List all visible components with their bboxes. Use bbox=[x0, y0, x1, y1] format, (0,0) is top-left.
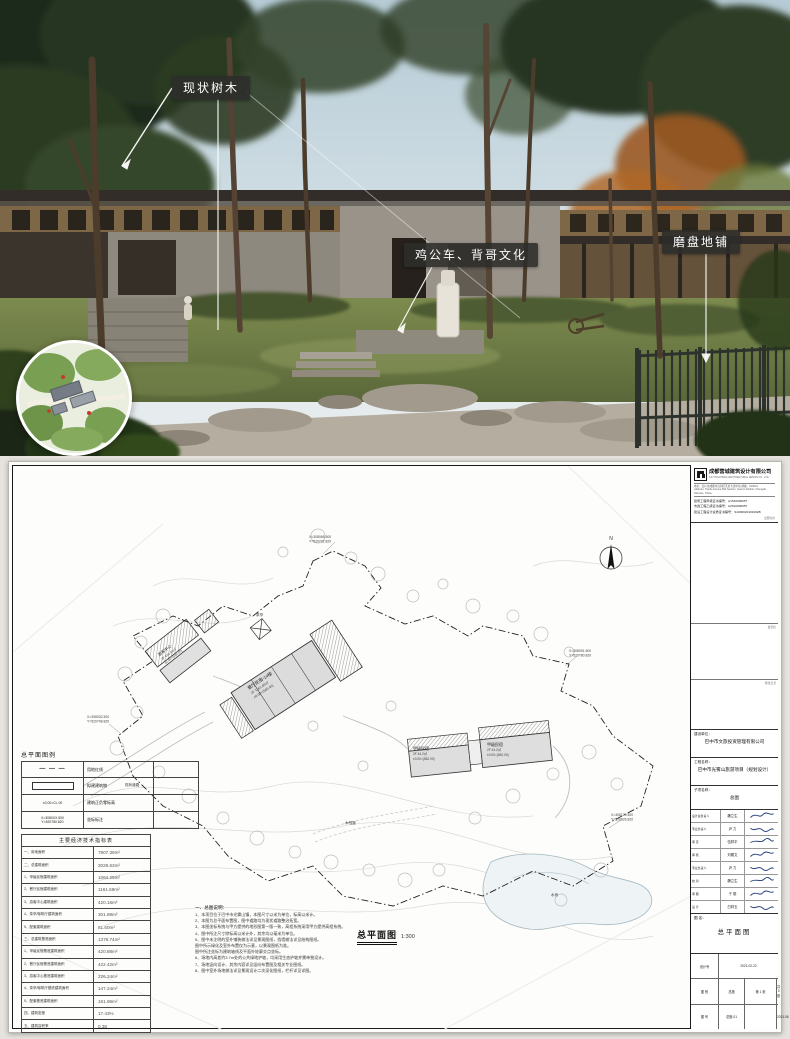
drawing-no-value: 总施-01 bbox=[719, 1005, 745, 1029]
owner-label: 建设单位： bbox=[694, 732, 775, 737]
legend-symbol: X=3080XX.500Y=520780.820 bbox=[22, 812, 84, 828]
sign-bar-section: 会签栏 bbox=[691, 623, 778, 679]
signature-name: 魏立生 bbox=[721, 810, 745, 822]
svg-text:Y=520780.820: Y=520780.820 bbox=[569, 654, 591, 658]
drawing-name-value: 总平面图 bbox=[694, 926, 775, 936]
signature-name: 于 丽 bbox=[721, 888, 745, 900]
signature-row: 专业负责人尹 力 bbox=[691, 862, 778, 875]
signature-scribble bbox=[745, 901, 778, 913]
indicator-value: 420.88m² bbox=[94, 946, 152, 957]
indicator-label: 1、甲级民宿基底建筑面积 bbox=[22, 946, 94, 957]
signature-row: 审 定伍祥平 bbox=[691, 836, 778, 849]
signature-row: 审 图于 丽 bbox=[691, 888, 778, 901]
signature-row: 校 对魏立生 bbox=[691, 875, 778, 888]
indicator-value: 226.24m² bbox=[94, 971, 152, 982]
signature-role: 校 对 bbox=[691, 875, 721, 887]
project-block: 工程名称： 巴中市光雾山旅游项目（规划设计） bbox=[691, 757, 778, 785]
signature-scribble bbox=[745, 862, 778, 874]
indicator-row: 5、配套基底建筑面积161.96m² bbox=[21, 996, 151, 1008]
svg-text:甲级民宿: 甲级民宿 bbox=[413, 745, 429, 751]
general-notes: 一、总图说明： 1、本项目位于巴中市光雾山镇，本图尺寸以米为单位，标高以米计。2… bbox=[195, 904, 357, 974]
indicator-value: 161.96m² bbox=[94, 996, 152, 1007]
svg-text:X=308065.500: X=308065.500 bbox=[309, 535, 331, 539]
note-line: 3、本图坐标系统与甲方提供的地形图第一版一致，高程系统采用甲方提供高程系统。 bbox=[195, 924, 357, 930]
legend-row: 拟建建筑物 bbox=[21, 778, 199, 795]
indicator-row: 5、配套建筑面积81.60m² bbox=[21, 921, 151, 933]
legend-label: 用地红线 bbox=[84, 762, 154, 777]
drawing-number-grid: 设计号 2021-02-22 图 别 总施 第 1 张 共 3 张 图 号 总施… bbox=[691, 953, 778, 1029]
indicator-value: 17.43% bbox=[94, 1008, 152, 1019]
indicator-label: 2、餐厅民宿基底建筑面积 bbox=[22, 959, 94, 970]
legend-table: — — —用地红线拟建建筑物±0.00=CL.00建筑正负零标高X=3080XX… bbox=[21, 761, 199, 829]
svg-text:2F 44.2㎡: 2F 44.2㎡ bbox=[413, 751, 428, 756]
company-logo-icon bbox=[694, 468, 707, 481]
subitem-block: 子项名称： 总图 bbox=[691, 785, 778, 809]
indicator-row: 1、甲级民宿基底建筑面积420.88m² bbox=[21, 946, 151, 958]
signature-row: 设 计白祥玉 bbox=[691, 901, 778, 913]
owner-value: 巴中市文旅投资管理有限公司 bbox=[694, 739, 775, 745]
building-cluster-restaurant bbox=[214, 620, 362, 743]
callout-culture-label: 鸡公车、背哥文化 bbox=[415, 248, 527, 262]
signature-role: 专业负责人 bbox=[691, 823, 721, 835]
signature-name: 伍祥平 bbox=[721, 836, 745, 848]
building-cluster-visitor-center bbox=[145, 605, 230, 683]
svg-text:X=308091.500: X=308091.500 bbox=[569, 649, 591, 653]
indicator-value: 1161.69m² bbox=[94, 884, 152, 895]
indicator-value: 420.16m² bbox=[94, 897, 152, 908]
callout-existing-trees: 现状树木 bbox=[172, 76, 250, 100]
boardwalk bbox=[313, 806, 437, 842]
legend-symbol: — — — bbox=[22, 762, 84, 777]
company-block: 成都营城建筑设计有限公司 CD YINGCHENG ARCHITECTURAL … bbox=[691, 465, 778, 523]
signature-scribble bbox=[745, 888, 778, 900]
indicator-label: 一、用地面积 bbox=[22, 847, 94, 858]
indicator-value: 1378.74m² bbox=[94, 934, 152, 945]
indicator-row: 3、游客中心建筑面积420.16m² bbox=[21, 897, 151, 909]
indicator-value: 0.38 bbox=[94, 1020, 152, 1031]
revision-bar-section: 修改记录 bbox=[691, 679, 778, 729]
indicator-label: 5、配套基底建筑面积 bbox=[22, 996, 94, 1007]
issue-date: 2021.06 bbox=[777, 1005, 789, 1029]
signature-role: 专业负责人 bbox=[691, 862, 721, 874]
boundary-dash-symbol: — — — bbox=[39, 766, 65, 773]
legend-symbol: ±0.00=CL.00 bbox=[22, 795, 84, 811]
legend-label: 坐标标注 bbox=[84, 812, 154, 828]
indicator-row: 1、甲级民宿建筑面积1064.29m² bbox=[21, 872, 151, 884]
indicator-label: 二、总建筑面积 bbox=[22, 859, 94, 870]
indicator-row: 三、总建筑基底面积1378.74m² bbox=[21, 934, 151, 946]
site-boundary-redline bbox=[118, 551, 653, 906]
callout-millstone-paving: 磨盘地铺 bbox=[662, 230, 740, 254]
svg-text:甲级民宿: 甲级民宿 bbox=[487, 741, 503, 747]
svg-text:X=308120.500: X=308120.500 bbox=[611, 813, 633, 817]
signature-name: 尹 力 bbox=[721, 823, 745, 835]
drawing-name-label: 图 名： bbox=[694, 916, 775, 921]
legend-row: ±0.00=CL.00建筑正负零标高 bbox=[21, 795, 199, 812]
svg-text:茶亭: 茶亭 bbox=[256, 612, 264, 617]
plan-title-text: 总平面图 bbox=[357, 928, 397, 945]
indicator-row: 4、茶亭/咖啡厅基底建筑面积147.24m² bbox=[21, 983, 151, 995]
signature-name: 刘耀文 bbox=[721, 849, 745, 861]
svg-text:Y=520826.820: Y=520826.820 bbox=[611, 818, 633, 822]
signature-row: 审 核刘耀文 bbox=[691, 849, 778, 862]
company-certificates: 建筑工程甲级证书编号：A1510000057 市政工程乙级证书编号：A25100… bbox=[694, 497, 775, 516]
indicator-value: 1064.29m² bbox=[94, 872, 152, 883]
legend: 总平面图例 — — —用地红线拟建建筑物±0.00=CL.00建筑正负零标高X=… bbox=[21, 750, 199, 829]
signature-name: 白祥玉 bbox=[721, 901, 745, 913]
title-block: 成都营城建筑设计有限公司 CD YINGCHENG ARCHITECTURAL … bbox=[690, 465, 778, 1029]
sheet-number: 第 1 张 bbox=[745, 979, 777, 1003]
note-line: 8、图中室外场地做法详见景观设计二次深化图纸，栏杆详见详图。 bbox=[195, 968, 357, 974]
project-label: 工程名称： bbox=[694, 760, 775, 765]
north-label: N bbox=[609, 536, 613, 542]
callout-existing-trees-label: 现状树木 bbox=[183, 81, 239, 95]
svg-text:2F 44.2㎡: 2F 44.2㎡ bbox=[487, 747, 502, 752]
plan-trees bbox=[110, 529, 623, 906]
drawing-sheet: N X=308065.500Y=520702.820 X=308091.500Y… bbox=[8, 461, 782, 1033]
indicator-value: 422.42m² bbox=[94, 959, 152, 970]
signature-grid: 设计总负责人魏立生专业负责人尹 力审 定伍祥平审 核刘耀文专业负责人尹 力校 对… bbox=[691, 809, 778, 913]
svg-text:±0.00=(562.00): ±0.00=(562.00) bbox=[413, 757, 435, 761]
company-name-en: CD YINGCHENG ARCHITECTURAL DESIGN CO., L… bbox=[709, 476, 771, 479]
signature-scribble bbox=[745, 823, 778, 835]
indicator-row: 2、餐厅民宿建筑面积1161.69m² bbox=[21, 884, 151, 896]
building-outline-symbol bbox=[32, 782, 74, 790]
indicators-table: 主要经济技术指标表 一、用地面积7907.39m²二、总建筑面积3029.63m… bbox=[21, 834, 151, 1033]
presentation-board: 现状树木 鸡公车、背哥文化 磨盘地铺 bbox=[0, 0, 790, 1039]
sheet-total: 共 3 张 bbox=[777, 979, 780, 1003]
signature-scribble bbox=[745, 875, 778, 887]
signature-scribble bbox=[745, 836, 778, 848]
company-address-line2: Address: Tianfu Avenue Mid Section, Gaox… bbox=[694, 488, 775, 495]
svg-text:水系: 水系 bbox=[551, 892, 559, 897]
signature-role: 审 核 bbox=[691, 849, 721, 861]
indicator-label: 2、餐厅民宿建筑面积 bbox=[22, 884, 94, 895]
indicator-value: 301.89m² bbox=[94, 909, 152, 920]
north-arrow: N bbox=[600, 536, 622, 569]
svg-text:X=308032.500: X=308032.500 bbox=[87, 715, 109, 719]
indicators-rows: 一、用地面积7907.39m²二、总建筑面积3029.63m²1、甲级民宿建筑面… bbox=[21, 847, 151, 1033]
siteplan-inset-thumbnail bbox=[16, 340, 132, 456]
indicator-row: 3、游客中心基底建筑面积226.24m² bbox=[21, 971, 151, 983]
subitem-label: 子项名称： bbox=[694, 788, 775, 793]
callout-culture: 鸡公车、背哥文化 bbox=[404, 243, 538, 267]
tea-pavilion bbox=[250, 619, 271, 640]
drawing-no-label: 图 号 bbox=[691, 1005, 719, 1029]
svg-text:Y=520748.820: Y=520748.820 bbox=[87, 720, 109, 724]
signature-row: 专业负责人尹 力 bbox=[691, 823, 778, 836]
drawing-date: 2021-02-22 bbox=[719, 954, 778, 978]
category-label: 图 别 bbox=[691, 979, 719, 1003]
indicator-value: 147.24m² bbox=[94, 983, 152, 994]
signature-role: 设计总负责人 bbox=[691, 810, 721, 822]
subitem-value: 总图 bbox=[694, 795, 775, 801]
indicators-title: 主要经济技术指标表 bbox=[21, 834, 151, 847]
signature-role: 设 计 bbox=[691, 901, 721, 913]
callout-millstone-paving-label: 磨盘地铺 bbox=[673, 235, 729, 249]
indicator-value: 7907.39m² bbox=[94, 847, 152, 858]
elevation-symbol: ±0.00=CL.00 bbox=[43, 801, 63, 805]
legend-symbol bbox=[22, 778, 84, 794]
indicator-row: 四、建筑密度17.43% bbox=[21, 1008, 151, 1020]
plan-scale: 1:300 bbox=[401, 934, 415, 940]
signature-role: 审 图 bbox=[691, 888, 721, 900]
notes-lines: 1、本项目位于巴中市光雾山镇，本图尺寸以米为单位，标高以米计。2、本图为总平面布… bbox=[195, 912, 357, 974]
indicator-label: 四、建筑密度 bbox=[22, 1008, 94, 1019]
svg-text:Y=520702.820: Y=520702.820 bbox=[309, 540, 331, 544]
indicator-label: 3、游客中心建筑面积 bbox=[22, 897, 94, 908]
design-no-label: 设计号 bbox=[691, 954, 719, 978]
water-feature bbox=[483, 854, 652, 929]
indicator-label: 4、茶亭/咖啡厅建筑面积 bbox=[22, 909, 94, 920]
category-value: 总施 bbox=[719, 979, 745, 1003]
indicator-row: 2、餐厅民宿基底建筑面积422.42m² bbox=[21, 959, 151, 971]
coord-symbol: Y=520780.820 bbox=[41, 820, 64, 824]
signature-name: 魏立生 bbox=[721, 875, 745, 887]
signature-scribble bbox=[745, 849, 778, 861]
legend-label: 拟建建筑物 bbox=[84, 778, 154, 794]
inset-miniplan bbox=[19, 343, 129, 453]
svg-text:木栈道: 木栈道 bbox=[345, 820, 356, 825]
company-address: 地址：四川省成都市高新区天府大道中段 邮编：610041 Address: Ti… bbox=[694, 483, 775, 497]
drawing-name-block: 图 名： 总平面图 bbox=[691, 913, 778, 953]
indicator-row: 4、茶亭/咖啡厅建筑面积301.89m² bbox=[21, 909, 151, 921]
indicator-label: 5、配套建筑面积 bbox=[22, 921, 94, 932]
indicator-label: 3、游客中心基底建筑面积 bbox=[22, 971, 94, 982]
coord-symbol-wrap: X=3080XX.500Y=520780.820 bbox=[41, 816, 64, 824]
indicator-label: 五、建筑容积率 bbox=[22, 1020, 94, 1031]
legend-label: 建筑正负零标高 bbox=[84, 795, 154, 811]
owner-block: 建设单位： 巴中市文旅投资管理有限公司 bbox=[691, 729, 778, 757]
indicator-row: 五、建筑容积率0.38 bbox=[21, 1020, 151, 1032]
notes-title: 一、总图说明： bbox=[195, 904, 357, 911]
legend-row: X=3080XX.500Y=520780.820坐标标注 bbox=[21, 812, 199, 829]
indicator-label: 1、甲级民宿建筑面积 bbox=[22, 872, 94, 883]
svg-text:±0.00=(562.00): ±0.00=(562.00) bbox=[487, 753, 509, 757]
indicator-value: 3029.63m² bbox=[94, 859, 152, 870]
signature-scribble bbox=[745, 810, 778, 822]
signature-name: 尹 力 bbox=[721, 862, 745, 874]
seal-note: 出图专用 bbox=[694, 516, 775, 520]
architectural-rendering: 现状树木 鸡公车、背哥文化 磨盘地铺 bbox=[0, 0, 790, 456]
indicator-label: 4、茶亭/咖啡厅基底建筑面积 bbox=[22, 983, 94, 994]
indicator-value: 81.60m² bbox=[94, 921, 152, 932]
signature-row: 设计总负责人魏立生 bbox=[691, 810, 778, 823]
cert-line: 建设工程设计资质证书编号：S1000020101002B bbox=[694, 510, 775, 515]
project-value: 巴中市光雾山旅游项目（规划设计） bbox=[694, 767, 775, 773]
signature-role: 审 定 bbox=[691, 836, 721, 848]
legend-row: — — —用地红线 bbox=[21, 761, 199, 778]
indicator-row: 二、总建筑面积3029.63m² bbox=[21, 859, 151, 871]
legend-title: 总平面图例 bbox=[21, 750, 199, 759]
indicator-row: 一、用地面积7907.39m² bbox=[21, 847, 151, 859]
title-block-spacer bbox=[691, 523, 778, 623]
plan-title: 总平面图 1:300 bbox=[357, 928, 415, 945]
indicator-label: 三、总建筑基底面积 bbox=[22, 934, 94, 945]
